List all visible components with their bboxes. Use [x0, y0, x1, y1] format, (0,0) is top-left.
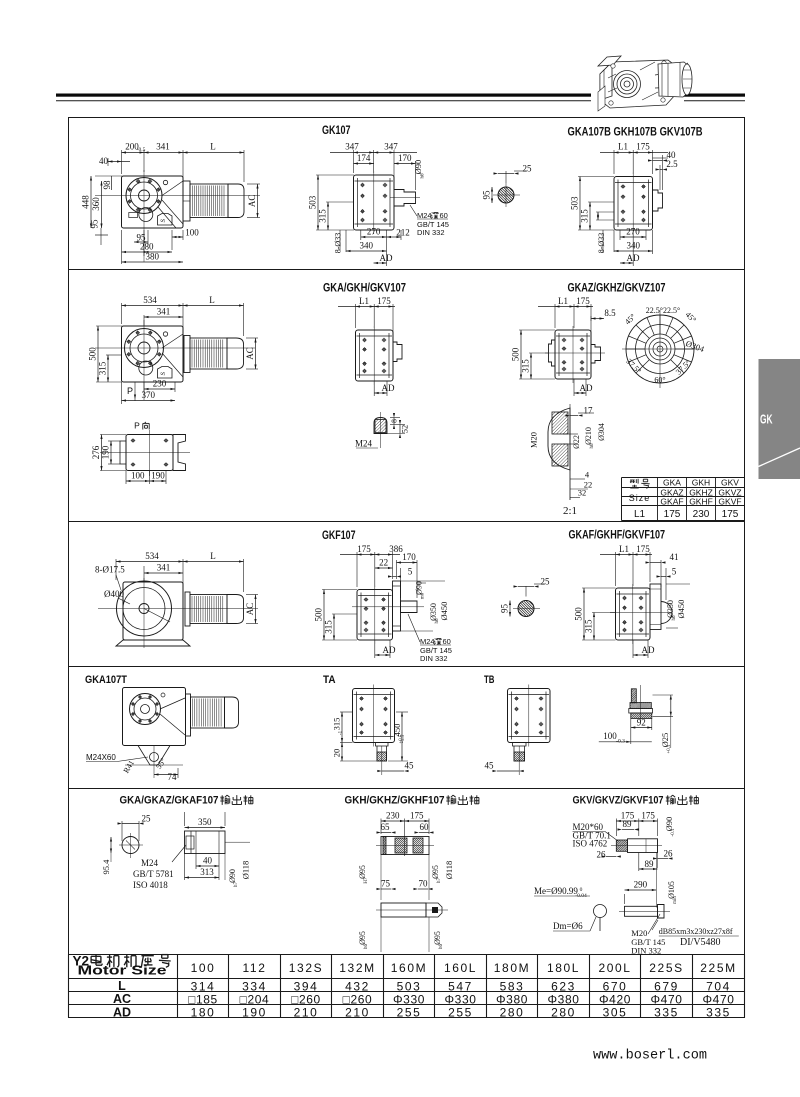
svg-text:ISO 4018: ISO 4018 [133, 880, 168, 890]
svg-text:32: 32 [578, 488, 587, 498]
svg-text:Ø118: Ø118 [444, 861, 454, 880]
svg-text:AD: AD [113, 1005, 131, 1019]
svg-text:350: 350 [198, 817, 212, 827]
svg-text:-0.5: -0.5 [137, 147, 146, 153]
svg-text:22: 22 [379, 558, 388, 568]
svg-text:□260: □260 [291, 992, 321, 1006]
svg-text:Φ330: Φ330 [393, 992, 425, 1006]
svg-text:534: 534 [143, 295, 157, 305]
svg-text:□185: □185 [188, 992, 218, 1006]
svg-text:75: 75 [381, 879, 391, 889]
svg-text:M20: M20 [529, 432, 539, 448]
svg-text:Size: Size [629, 493, 651, 503]
svg-text:GKV/GKVZ/GKVF107: GKV/GKVZ/GKVF107 [573, 795, 664, 807]
svg-text:h6: h6 [364, 944, 369, 950]
svg-text:L1: L1 [634, 509, 646, 520]
svg-text:360: 360 [91, 197, 101, 211]
svg-text:GKAF/GKHF/GKVF107: GKAF/GKHF/GKVF107 [569, 528, 666, 542]
svg-text:GKH/GKHZ/GKHF107: GKH/GKHZ/GKHF107 [345, 795, 445, 807]
svg-text:276: 276 [91, 445, 101, 459]
svg-text:GKA/GKAZ/GKAF107: GKA/GKAZ/GKAF107 [120, 795, 219, 807]
svg-text:60: 60 [420, 822, 430, 832]
svg-text:313: 313 [200, 867, 214, 877]
svg-text:L1: L1 [618, 142, 628, 152]
svg-text:503: 503 [570, 196, 580, 210]
svg-text:305: 305 [603, 1005, 628, 1019]
svg-text:GKH: GKH [692, 478, 710, 488]
svg-text:679: 679 [654, 979, 679, 993]
svg-text:45: 45 [485, 761, 495, 771]
svg-text:AC: AC [245, 347, 255, 360]
svg-text:95.4: 95.4 [101, 859, 111, 875]
svg-text:dB85xm3x230xz27x8f: dB85xm3x230xz27x8f [659, 927, 733, 936]
svg-text:175: 175 [722, 509, 739, 520]
svg-text:□204: □204 [240, 992, 270, 1006]
svg-text:290: 290 [634, 880, 648, 890]
svg-text:340: 340 [626, 241, 640, 251]
svg-text:GKHF: GKHF [689, 497, 713, 507]
svg-text:315: 315 [521, 359, 531, 373]
svg-text:212: 212 [396, 228, 410, 238]
svg-text:60: 60 [440, 211, 448, 220]
svg-text:Ø95: Ø95 [358, 865, 367, 879]
svg-text:GKVF: GKVF [718, 497, 741, 507]
svg-text:M24: M24 [417, 211, 432, 220]
svg-text:503: 503 [308, 195, 318, 209]
svg-text:Ø118: Ø118 [241, 861, 251, 880]
svg-text:280: 280 [500, 1005, 525, 1019]
svg-text:52: 52 [400, 425, 410, 434]
svg-text:347: 347 [384, 142, 398, 152]
svg-text:255: 255 [397, 1005, 422, 1019]
svg-text:TA: TA [323, 674, 336, 686]
svg-text:341: 341 [156, 142, 170, 152]
svg-text:m6: m6 [421, 592, 426, 599]
svg-text:Ø450: Ø450 [676, 600, 686, 619]
svg-text:200L: 200L [598, 961, 631, 975]
svg-text:H7: H7 [364, 877, 369, 884]
svg-text:670: 670 [603, 979, 628, 993]
svg-text:132M: 132M [339, 961, 375, 975]
svg-text:GKF107: GKF107 [322, 528, 356, 542]
svg-text:315: 315 [324, 620, 334, 634]
svg-text:AD: AD [642, 645, 655, 655]
svg-text:h6: h6 [439, 944, 444, 950]
svg-text:314: 314 [191, 979, 216, 993]
svg-text:65: 65 [381, 822, 391, 832]
svg-text:Motor Size: Motor Size [78, 964, 167, 978]
svg-text:Ø350: Ø350 [429, 603, 438, 621]
svg-text:Φ470: Φ470 [703, 992, 735, 1006]
svg-text:-1.5: -1.5 [401, 735, 406, 743]
svg-text:Φ470: Φ470 [651, 992, 683, 1006]
svg-text:-0.3: -0.3 [616, 739, 625, 745]
svg-text:Ø210: Ø210 [584, 427, 593, 445]
svg-text:100: 100 [131, 471, 145, 481]
svg-text:280: 280 [140, 242, 154, 252]
svg-text:180L: 180L [547, 961, 580, 975]
svg-text:341: 341 [157, 307, 171, 317]
svg-text:335: 335 [654, 1005, 679, 1019]
svg-text:190: 190 [242, 1005, 267, 1019]
svg-text:Ø90: Ø90 [413, 160, 423, 175]
svg-text:2:1: 2:1 [563, 505, 577, 517]
svg-text:Ø304: Ø304 [597, 423, 606, 441]
svg-text:74: 74 [168, 772, 178, 782]
svg-text:M24X60: M24X60 [86, 753, 116, 762]
svg-text:160M: 160M [391, 961, 427, 975]
svg-text:503: 503 [397, 979, 422, 993]
svg-text:335: 335 [706, 1005, 731, 1019]
svg-text:175: 175 [636, 142, 650, 152]
svg-text:95: 95 [90, 219, 100, 229]
svg-text:270: 270 [626, 227, 640, 237]
svg-text:Dm=Ø6: Dm=Ø6 [553, 921, 583, 931]
svg-text:341: 341 [157, 563, 171, 573]
svg-text:175: 175 [641, 811, 655, 821]
svg-text:225S: 225S [649, 961, 683, 975]
svg-text:L1: L1 [359, 296, 369, 306]
svg-text:112: 112 [243, 961, 267, 975]
svg-text:500: 500 [88, 347, 98, 361]
svg-text:547: 547 [448, 979, 473, 993]
svg-text:5: 5 [408, 567, 413, 577]
svg-text:210: 210 [294, 1005, 319, 1019]
svg-text:min: min [673, 896, 678, 904]
svg-text:AD: AD [380, 253, 393, 263]
svg-text:448: 448 [81, 195, 91, 209]
svg-text:25: 25 [142, 814, 152, 824]
svg-text:230: 230 [693, 509, 710, 520]
svg-text:255: 255 [448, 1005, 473, 1019]
svg-text:M24: M24 [141, 858, 159, 868]
svg-text:334: 334 [242, 979, 267, 993]
svg-text:L1: L1 [619, 544, 629, 554]
svg-text:394: 394 [294, 979, 319, 993]
svg-text:25: 25 [541, 577, 551, 587]
svg-text:ISO 4762: ISO 4762 [573, 839, 608, 849]
svg-text:Ø90: Ø90 [228, 869, 237, 883]
svg-text:92: 92 [637, 718, 646, 728]
svg-text:170: 170 [398, 153, 412, 163]
svg-text:8.5: 8.5 [604, 308, 616, 318]
svg-text:100: 100 [603, 731, 617, 741]
svg-text:+0.1: +0.1 [667, 744, 672, 754]
svg-text:DIN 332: DIN 332 [420, 654, 448, 663]
svg-text:40: 40 [99, 156, 109, 166]
svg-text:26: 26 [597, 850, 607, 860]
svg-text:GKV: GKV [721, 478, 739, 488]
svg-text:L: L [210, 142, 216, 152]
svg-text:174: 174 [357, 153, 371, 163]
svg-text:315: 315 [580, 209, 590, 223]
svg-text:Me=Ø90.99: Me=Ø90.99 [534, 886, 578, 896]
svg-text:98: 98 [102, 180, 112, 190]
svg-text:175: 175 [357, 544, 371, 554]
svg-text:L1: L1 [558, 296, 568, 306]
svg-text:DI/V5480: DI/V5480 [680, 937, 721, 948]
svg-text:h7: h7 [437, 878, 442, 884]
svg-text:AD: AD [580, 383, 593, 393]
svg-text:Ø400: Ø400 [104, 589, 124, 599]
svg-text:GK: GK [760, 413, 773, 427]
svg-text:500: 500 [314, 608, 324, 622]
svg-text:AC: AC [245, 603, 255, 616]
svg-text:Φ380: Φ380 [548, 992, 580, 1006]
svg-text:h7: h7 [234, 882, 239, 888]
svg-text:380: 380 [145, 252, 159, 262]
svg-text:AC: AC [247, 195, 257, 208]
svg-text:P: P [134, 421, 140, 431]
svg-text:2.5: 2.5 [666, 159, 678, 169]
svg-text:GK107: GK107 [322, 123, 351, 137]
svg-text:347: 347 [345, 142, 359, 152]
svg-text:L: L [209, 295, 215, 305]
svg-text:175: 175 [636, 544, 650, 554]
svg-text:210: 210 [345, 1005, 370, 1019]
svg-text:432: 432 [345, 979, 370, 993]
svg-text:AD: AD [383, 645, 396, 655]
svg-text:315: 315 [332, 718, 342, 731]
svg-text:500: 500 [574, 607, 584, 621]
svg-text:623: 623 [551, 979, 576, 993]
svg-text:175: 175 [410, 811, 424, 821]
svg-text:270: 270 [367, 227, 381, 237]
svg-text:175: 175 [377, 296, 391, 306]
svg-text:26: 26 [664, 849, 674, 859]
svg-text:TB: TB [484, 674, 495, 686]
svg-text:22.5°22.5°: 22.5°22.5° [646, 306, 680, 315]
svg-text:180: 180 [191, 1005, 216, 1019]
svg-text:315: 315 [584, 619, 594, 633]
svg-text:17: 17 [584, 406, 594, 416]
svg-text:175: 175 [576, 296, 590, 306]
svg-text:175: 175 [664, 509, 681, 520]
svg-text:25: 25 [523, 164, 533, 174]
svg-text:89: 89 [645, 859, 655, 869]
svg-text:45: 45 [405, 761, 415, 771]
svg-text:500: 500 [511, 347, 521, 361]
svg-text:Ø350: Ø350 [666, 600, 675, 618]
svg-text:95: 95 [500, 604, 510, 614]
svg-text:190: 190 [151, 471, 165, 481]
svg-text:534: 534 [145, 551, 159, 561]
svg-text:180M: 180M [494, 961, 530, 975]
svg-text:Ø95: Ø95 [431, 865, 440, 879]
svg-text:AC: AC [113, 992, 131, 1006]
svg-text:8-Ø33: 8-Ø33 [597, 233, 606, 253]
svg-text:370: 370 [141, 390, 155, 400]
svg-text:Ø95: Ø95 [433, 931, 442, 945]
svg-text:AD: AD [627, 253, 640, 263]
svg-text:132S: 132S [289, 961, 323, 975]
svg-text:100: 100 [191, 961, 216, 975]
svg-text:40: 40 [203, 856, 213, 866]
svg-text:L: L [118, 979, 126, 993]
svg-text:340: 340 [359, 241, 373, 251]
svg-text:170: 170 [402, 552, 416, 562]
svg-text:20: 20 [332, 749, 342, 758]
svg-text:315: 315 [318, 209, 328, 223]
svg-text:□260: □260 [343, 992, 373, 1006]
svg-text:M24: M24 [420, 637, 435, 646]
svg-text:www.boserl.com: www.boserl.com [593, 1049, 707, 1064]
svg-text:704: 704 [706, 979, 731, 993]
svg-text:583: 583 [500, 979, 525, 993]
svg-text:70: 70 [419, 879, 429, 889]
svg-text:8-Ø17.5: 8-Ø17.5 [95, 565, 125, 575]
svg-text:230: 230 [386, 811, 400, 821]
svg-text:89: 89 [623, 819, 633, 829]
svg-text:DIN 332: DIN 332 [417, 228, 445, 237]
svg-text:GKAZ/GKHZ/GKVZ107: GKAZ/GKHZ/GKVZ107 [568, 281, 666, 295]
svg-text:GKA/GKH/GKV107: GKA/GKH/GKV107 [323, 281, 406, 295]
svg-text:-0.1: -0.1 [671, 828, 676, 836]
svg-text:GB/T 5781: GB/T 5781 [133, 869, 174, 879]
svg-text:GKA107T: GKA107T [85, 674, 127, 686]
svg-text:GKAF: GKAF [660, 497, 683, 507]
svg-text:Φ420: Φ420 [599, 992, 631, 1006]
svg-text:Φ330: Φ330 [445, 992, 477, 1006]
svg-text:190: 190 [101, 445, 111, 459]
svg-text:Ø450: Ø450 [439, 602, 449, 621]
svg-text:-1: -1 [339, 730, 344, 735]
svg-text:AD: AD [382, 383, 395, 393]
svg-text:280: 280 [551, 1005, 576, 1019]
svg-text:Φ380: Φ380 [496, 992, 528, 1006]
svg-text:GKA107B GKH107B GKV107B: GKA107B GKH107B GKV107B [568, 125, 703, 139]
svg-text:M24: M24 [355, 439, 373, 449]
svg-text:L: L [210, 551, 216, 561]
svg-text:Ø22: Ø22 [572, 435, 581, 449]
svg-text:41: 41 [670, 552, 679, 562]
svg-text:Ø95: Ø95 [358, 931, 367, 945]
svg-text:P: P [127, 386, 133, 396]
svg-text:386: 386 [389, 544, 403, 554]
svg-text:GKA: GKA [663, 478, 681, 488]
svg-text:100: 100 [185, 228, 199, 238]
svg-text:315: 315 [98, 361, 108, 375]
svg-text:8: 8 [390, 419, 399, 423]
svg-text:225M: 225M [700, 961, 736, 975]
svg-text:5: 5 [672, 567, 677, 577]
svg-text:95: 95 [482, 190, 492, 200]
svg-text:60: 60 [443, 637, 451, 646]
svg-text:h6: h6 [590, 443, 595, 449]
svg-text:230: 230 [153, 379, 167, 389]
svg-text:8-Ø33: 8-Ø33 [334, 233, 343, 253]
svg-text:h6: h6 [421, 173, 426, 179]
svg-text:160L: 160L [444, 961, 477, 975]
